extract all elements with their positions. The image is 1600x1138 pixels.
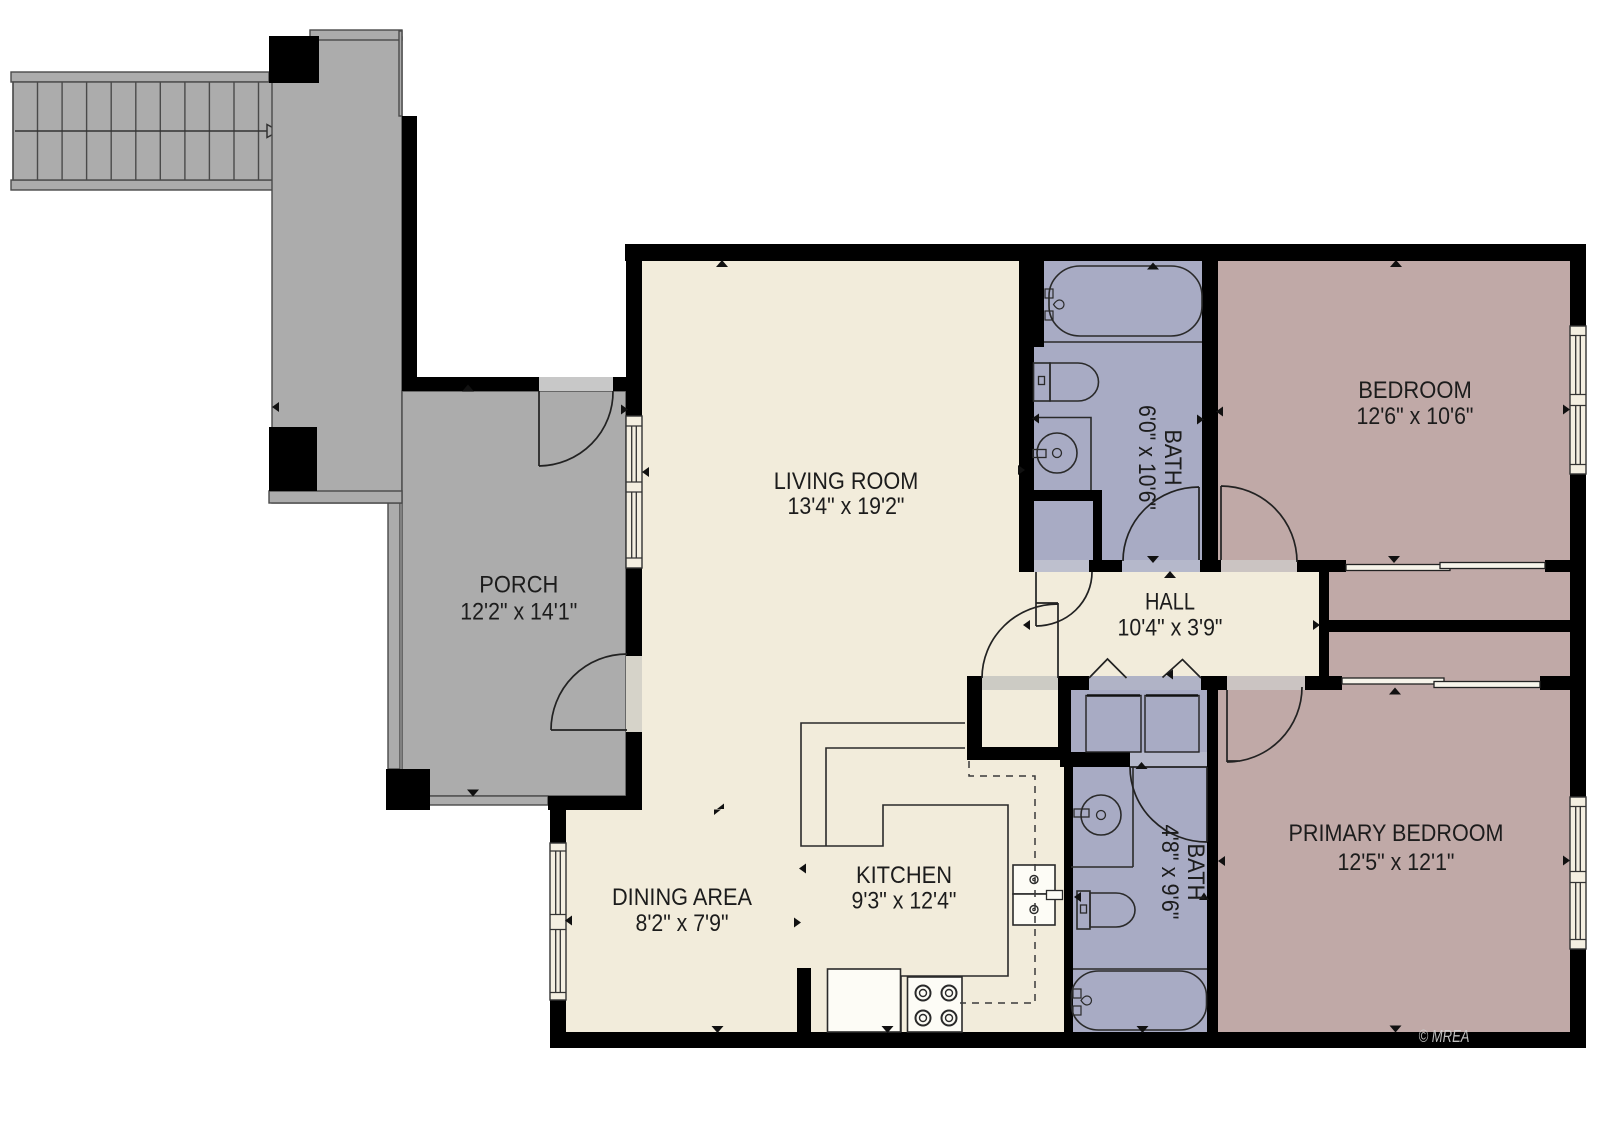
svg-text:DINING AREA: DINING AREA bbox=[612, 884, 752, 911]
svg-text:12'5" x 12'1": 12'5" x 12'1" bbox=[1338, 849, 1455, 876]
svg-text:KITCHEN: KITCHEN bbox=[856, 862, 952, 889]
svg-text:BATH: BATH bbox=[1159, 430, 1186, 486]
svg-text:BATH: BATH bbox=[1182, 844, 1209, 901]
svg-text:PRIMARY BEDROOM: PRIMARY BEDROOM bbox=[1289, 820, 1504, 847]
svg-text:BEDROOM: BEDROOM bbox=[1358, 377, 1472, 404]
svg-text:12'6" x 10'6": 12'6" x 10'6" bbox=[1357, 403, 1474, 430]
svg-text:PORCH: PORCH bbox=[479, 572, 558, 599]
svg-text:© MREA: © MREA bbox=[1419, 1026, 1470, 1046]
svg-text:10'4" x 3'9": 10'4" x 3'9" bbox=[1118, 615, 1223, 642]
svg-text:9'3" x 12'4": 9'3" x 12'4" bbox=[852, 887, 957, 914]
svg-text:4'8" x 9'6": 4'8" x 9'6" bbox=[1156, 825, 1183, 920]
svg-text:12'2" x 14'1": 12'2" x 14'1" bbox=[460, 599, 577, 626]
svg-text:LIVING ROOM: LIVING ROOM bbox=[774, 468, 919, 495]
svg-text:HALL: HALL bbox=[1145, 588, 1195, 615]
svg-text:8'2" x 7'9": 8'2" x 7'9" bbox=[636, 910, 729, 937]
svg-text:13'4" x 19'2": 13'4" x 19'2" bbox=[788, 493, 905, 520]
svg-text:6'0" x 10'6": 6'0" x 10'6" bbox=[1133, 405, 1160, 510]
